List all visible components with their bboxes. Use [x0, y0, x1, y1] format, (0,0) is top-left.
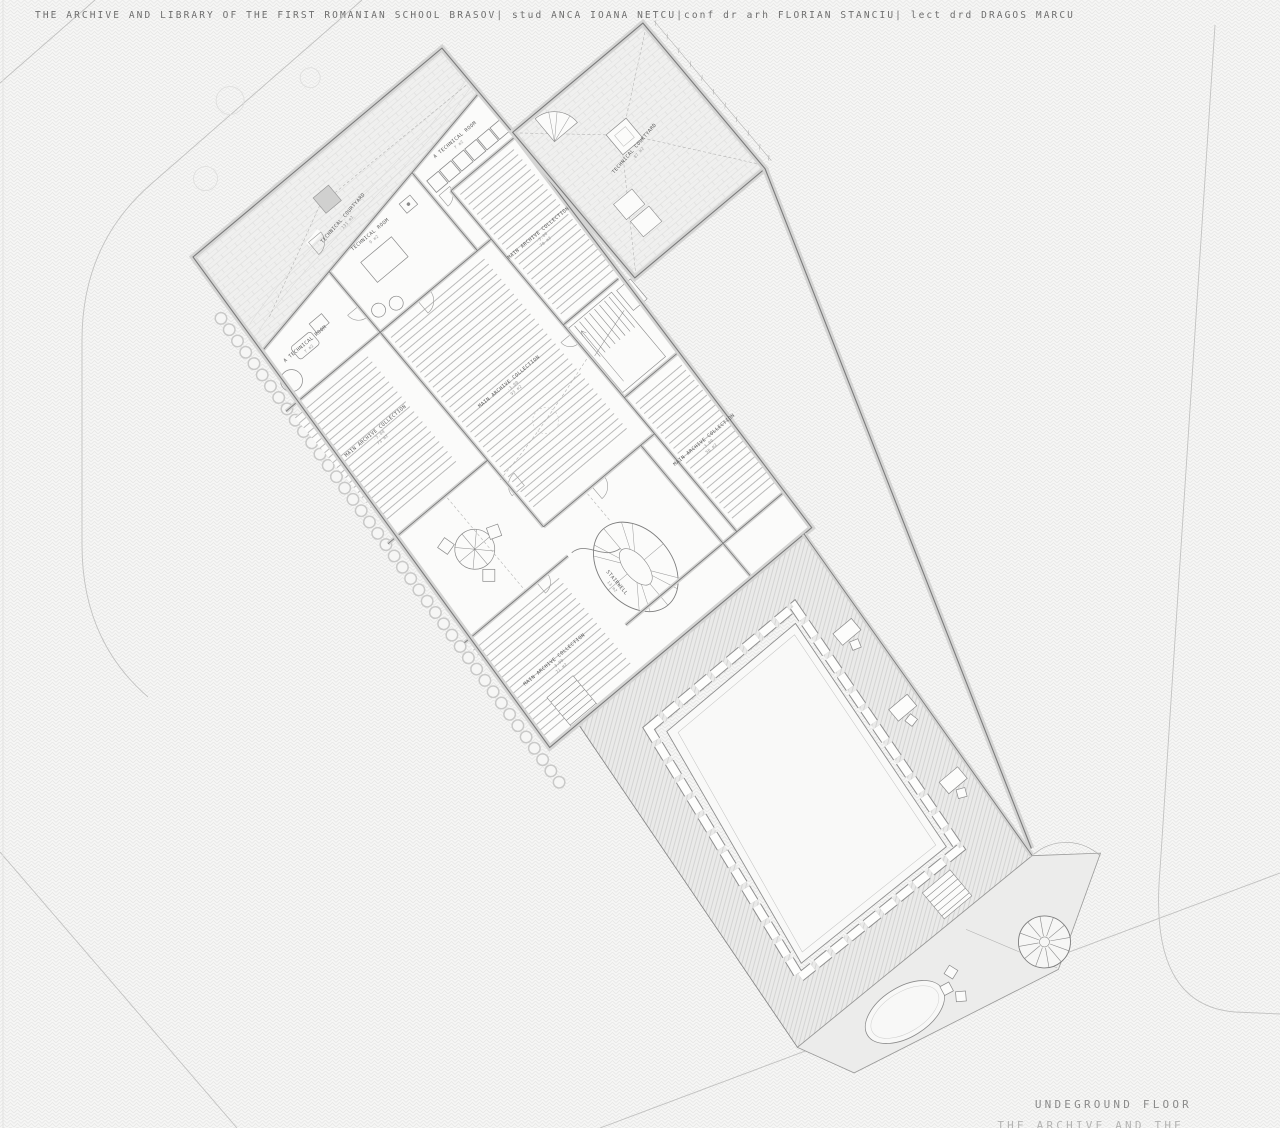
drawing-sheet: TECHNICAL COURTYARD131 m2 A TECHNICAL RO…	[0, 0, 1280, 1128]
floor-sublabel: THE ARCHIVE AND THE	[997, 1119, 1184, 1128]
site-plan-svg: TECHNICAL COURTYARD131 m2 A TECHNICAL RO…	[0, 0, 1280, 1128]
floor-label: UNDEGROUND FLOOR	[1035, 1098, 1192, 1111]
sheet-title: THE ARCHIVE AND LIBRARY OF THE FIRST ROM…	[35, 10, 1075, 21]
